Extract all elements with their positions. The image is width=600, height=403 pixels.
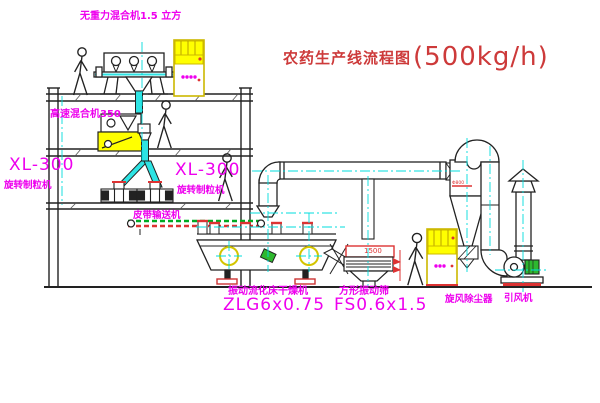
person-ground-floor [408, 233, 423, 285]
label-screen-model: FS0.6x1.5 [334, 297, 427, 314]
exhaust-stack [509, 169, 538, 260]
granulator-right [137, 182, 173, 202]
induced-draft-fan [501, 257, 543, 287]
label-dryer-model: ZLG6x0.75 [223, 297, 325, 314]
diagram-title: 农药生产线流程图 (500kg/h) [283, 42, 549, 72]
control-cabinet-1 [174, 40, 204, 96]
cyclone-separator [450, 140, 507, 276]
cyclone-diameter-dimension: Φ800 [452, 180, 464, 186]
label-cyclone: 旋风除尘器 [445, 295, 493, 305]
granulator-left [101, 182, 137, 202]
label-granulator-left-name: 旋转制粒机 [4, 181, 52, 191]
label-belt-conveyor: 皮带输送机 [133, 211, 181, 221]
person-second-floor [158, 101, 172, 148]
diagram-title-text: 农药生产线流程图 [283, 47, 411, 68]
process-flow-diagram: 1500 Φ800 农药生产线流程图 (500kg/h) 无重力混合机1.5 立… [0, 0, 600, 403]
label-granulator-right-name: 旋转制粒机 [177, 186, 225, 196]
fluid-bed-dryer [197, 221, 352, 284]
control-cabinet-2 [426, 229, 458, 288]
high-speed-mixer [98, 114, 151, 161]
label-high-speed-mixer: 高速混合机350 [50, 110, 121, 120]
screen-width-dimension: 1500 [364, 247, 382, 255]
diagram-title-capacity: (500kg/h) [413, 42, 549, 72]
label-fan: 引风机 [504, 294, 533, 304]
person-top-floor [74, 48, 88, 95]
label-granulator-right-model: XL-300 [175, 162, 240, 179]
label-granulator-left-model: XL-300 [9, 157, 74, 174]
label-gravity-mixer: 无重力混合机1.5 立方 [80, 12, 181, 22]
